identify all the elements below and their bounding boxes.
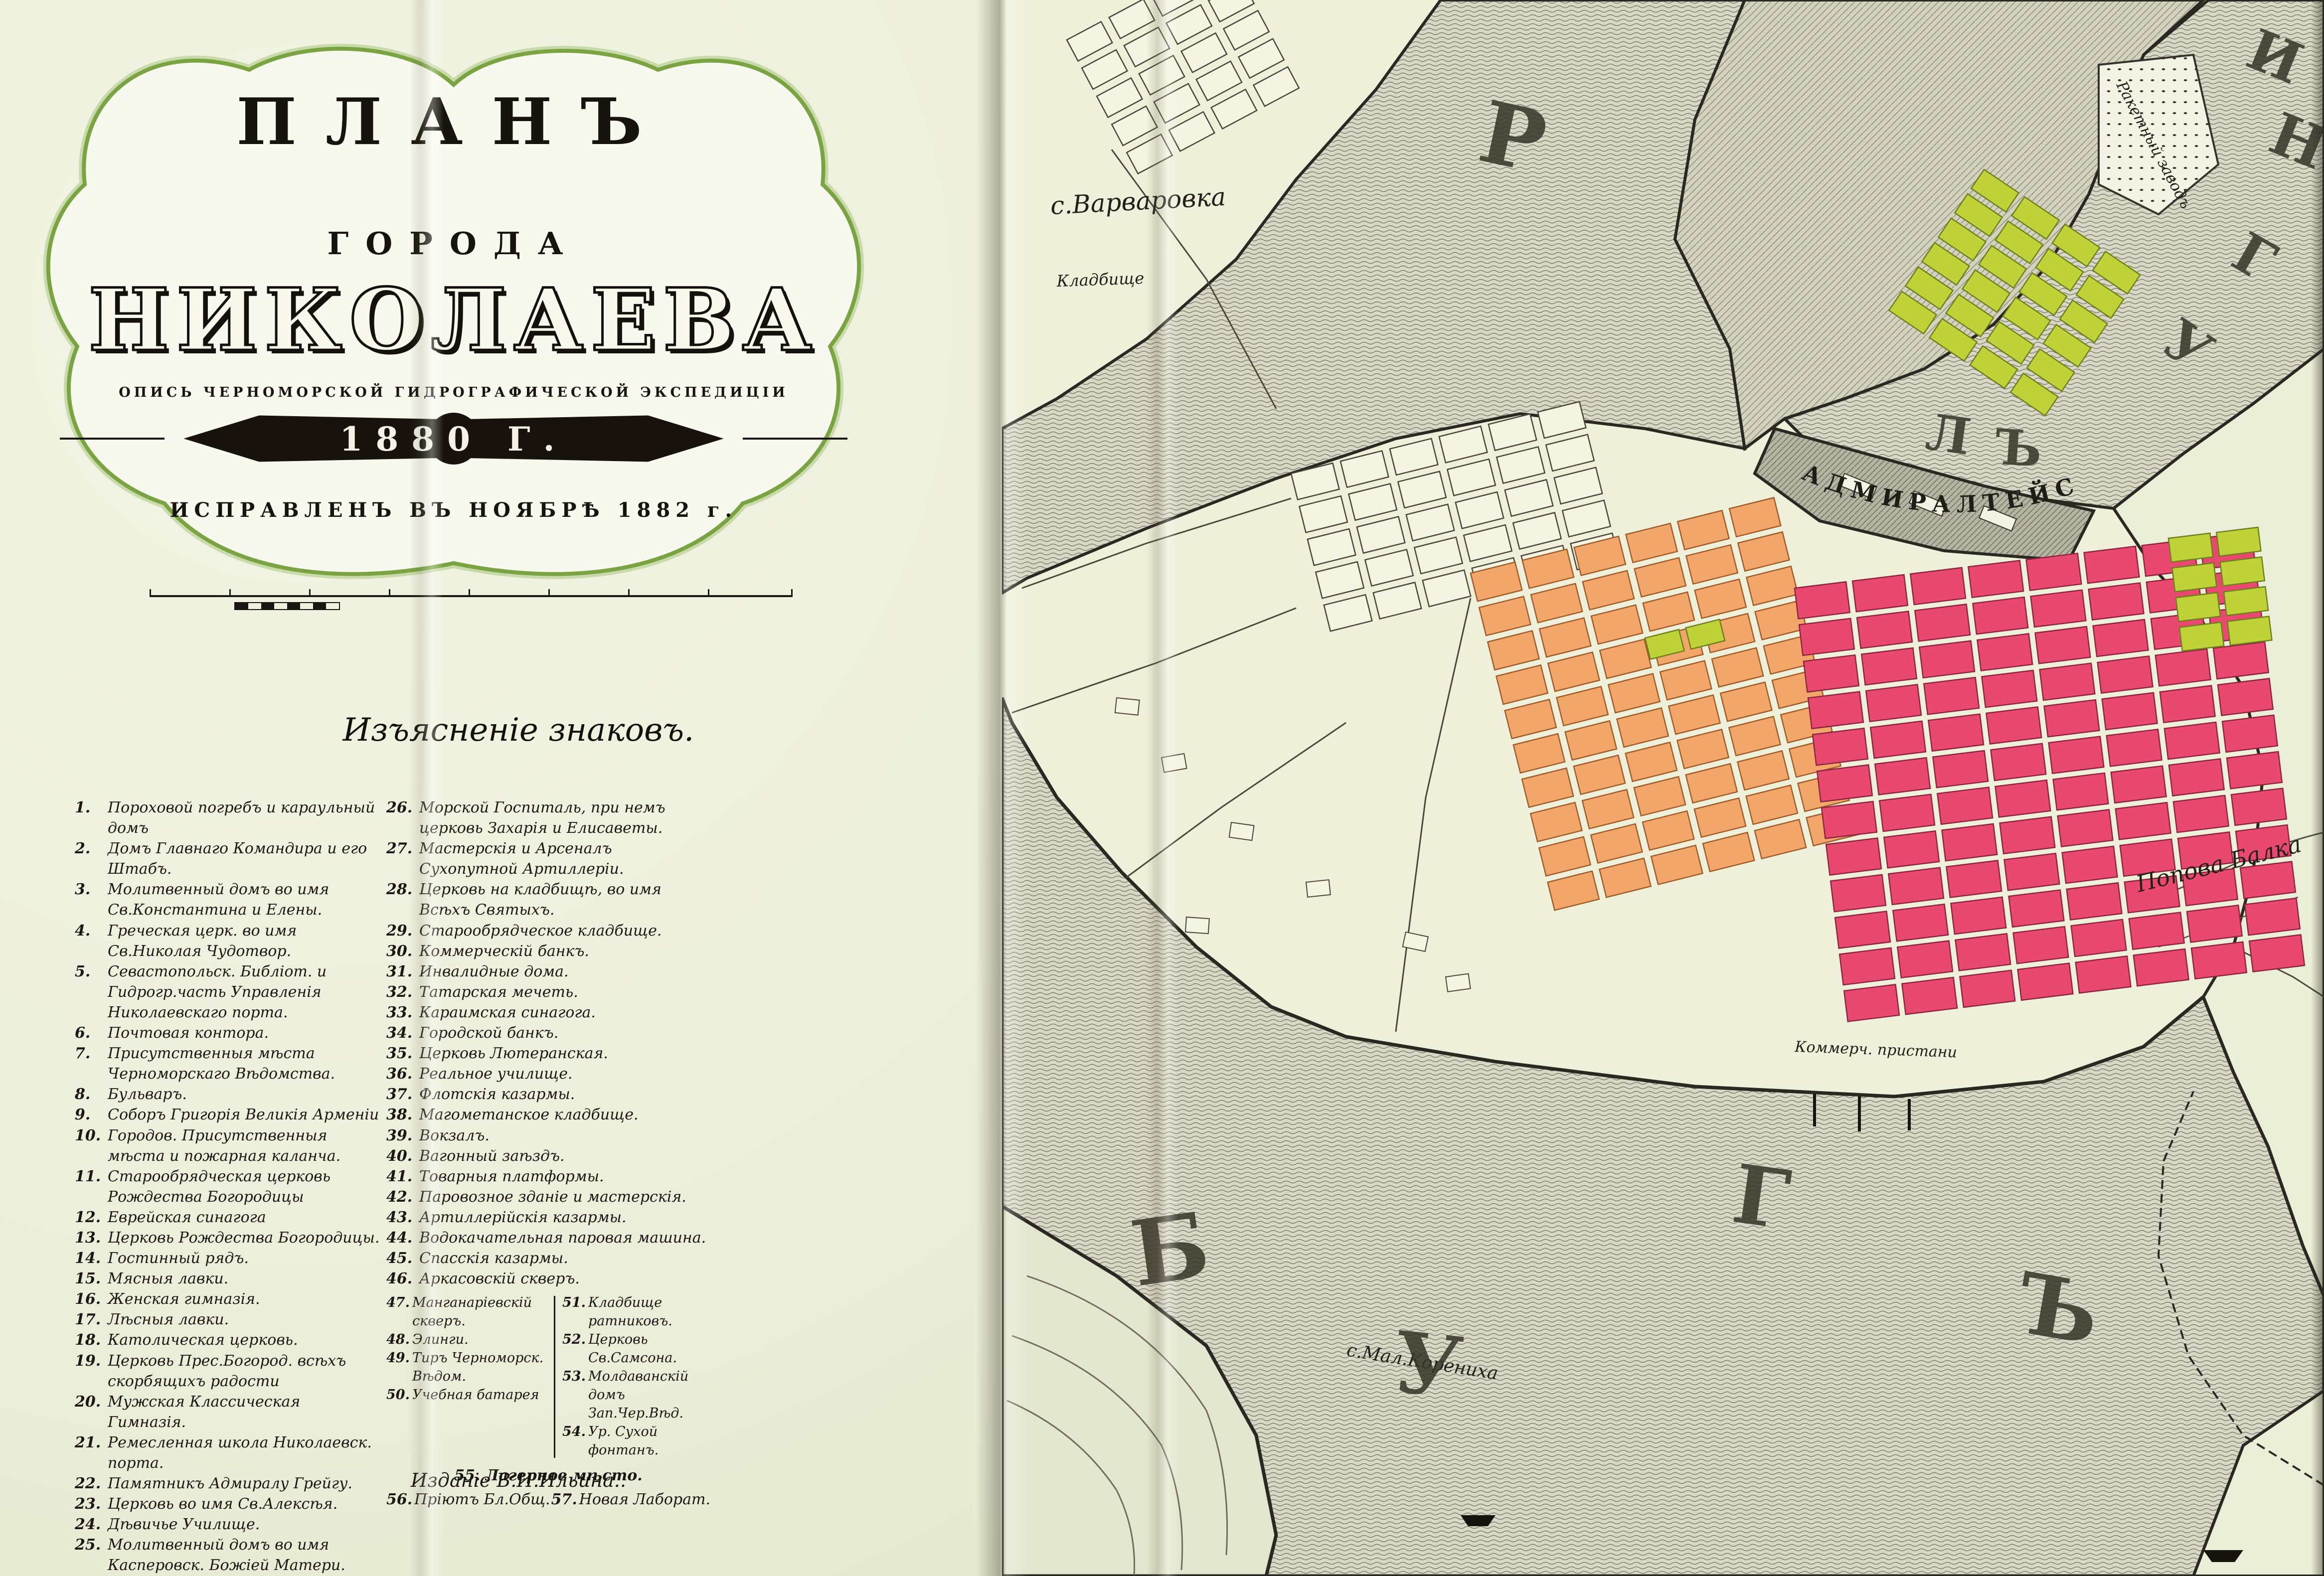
- city-block: [2160, 686, 2215, 723]
- scale-tick: [708, 589, 709, 597]
- legend-item: 41.Товарныя платформы.: [386, 1166, 710, 1187]
- city-block: [2049, 737, 2104, 774]
- city-block: [1933, 751, 1988, 788]
- legend-item-number: 45.: [386, 1248, 412, 1268]
- legend-item-text: Вагонный заѣздъ.: [419, 1147, 565, 1165]
- legend-item-text: Учебная батарея: [412, 1387, 539, 1403]
- legend-item-text: Ур. Сухой фонтанъ.: [588, 1424, 659, 1458]
- legend-item-text: Молитвенный домъ во имя Касперовск. Божі…: [108, 1536, 345, 1574]
- city-block: [1857, 612, 1912, 648]
- legend-item: 1.Пороховой погребъ и караульный домъ: [75, 797, 381, 838]
- city-block: [2067, 883, 2122, 920]
- legend-item-text: Магометанское кладбище.: [419, 1106, 638, 1123]
- city-block: [2035, 627, 2091, 663]
- legend-item-text: Мастерскія и Арсеналъ Сухопутной Артилле…: [419, 840, 624, 878]
- legend-item: 7.Присутственныя мѣста Черноморскаго Вѣд…: [75, 1043, 381, 1084]
- legend-item-text: Флотскія казармы.: [419, 1086, 575, 1103]
- scale-mini-bar: [234, 602, 340, 610]
- legend-item: 33.Караимская синагога.: [386, 1002, 710, 1023]
- city-block: [1795, 582, 1850, 619]
- city-block: [2191, 942, 2247, 979]
- legend-item-number: 43.: [386, 1207, 412, 1228]
- legend-item: 6.Почтовая контора.: [75, 1023, 381, 1043]
- year-ribbon: 1880 Г.: [165, 413, 743, 465]
- city-block: [1942, 824, 1997, 861]
- city-block: [2089, 583, 2144, 620]
- city-block: [1977, 633, 2032, 670]
- legend-item-text: Молдаванскій домъ Зап.Чер.Вѣд.: [588, 1369, 688, 1421]
- city-block: [1839, 948, 1895, 985]
- legend-item-number: 16.: [75, 1289, 101, 1309]
- scale-tick: [150, 589, 151, 597]
- legend-item-text: Лѣсныя лавки.: [108, 1311, 229, 1328]
- legend-item-number: 50.: [386, 1386, 410, 1405]
- city-block: [2227, 752, 2282, 788]
- legend-item: 35.Церковь Лютеранская.: [386, 1043, 710, 1064]
- legend-row-56-57: 56.Пріютъ Бл.Общ.57.Новая Лаборат.: [386, 1489, 710, 1510]
- legend-item-text: Старообрядческая церковь Рождества Богор…: [108, 1168, 331, 1206]
- city-block: [2176, 593, 2220, 622]
- legend-item: 12.Еврейская синагога: [75, 1207, 381, 1228]
- legend-item-number: 26.: [386, 797, 412, 818]
- legend-item-text: Товарныя платформы.: [419, 1168, 604, 1185]
- city-block: [1844, 984, 1899, 1021]
- city-block: [1870, 721, 1926, 758]
- legend-item-text: Церковь Прес.Богород. всѣхъ скорбящихъ р…: [108, 1352, 346, 1390]
- legend-item-text: Мужская Классическая Гимназія.: [108, 1393, 300, 1431]
- scale-bar: [150, 582, 793, 612]
- legend-item: 26.Морской Госпиталь, при немъ церковь З…: [386, 797, 710, 838]
- city-block: [1808, 692, 1863, 729]
- scale-bar-line: [150, 595, 793, 597]
- legend-item-text: Спасскія казармы.: [419, 1250, 568, 1267]
- legend-item-number: 6.: [75, 1023, 90, 1043]
- legend-item-text: Ремесленная школа Николаевск. порта.: [108, 1434, 372, 1472]
- city-block: [2107, 729, 2162, 766]
- legend-sub-columns: 47.Манганаріевскій скверъ.48.Элинги.49.Т…: [386, 1294, 710, 1460]
- legend-item-number: 1.: [75, 797, 90, 818]
- ribbon-rule-left: [60, 438, 165, 440]
- river-letter: У: [1389, 1312, 1467, 1418]
- city-block: [2179, 622, 2224, 651]
- legend-item-text: Присутственныя мѣста Черноморскаго Вѣдом…: [108, 1045, 335, 1083]
- legend-item: 20.Мужская Классическая Гимназія.: [75, 1392, 381, 1432]
- scale-tick: [309, 589, 311, 597]
- river-letter: Ъ: [2010, 1253, 2107, 1364]
- legend-item: 57.Новая Лаборат.: [551, 1489, 710, 1510]
- legend-item-number: 39.: [386, 1125, 412, 1146]
- river-letter: Б: [1125, 1192, 1216, 1307]
- city-block: [2220, 557, 2265, 586]
- legend-item-text: Кладбище ратниковъ.: [588, 1295, 672, 1329]
- legend-item-text: Пороховой погребъ и караульный домъ: [108, 799, 375, 837]
- legend-item-number: 47.: [386, 1294, 410, 1312]
- city-block: [2071, 920, 2127, 956]
- legend-item-number: 56.: [386, 1489, 412, 1510]
- river-letter: Ъ: [1993, 418, 2044, 478]
- city-block: [2222, 715, 2278, 752]
- legend-item-number: 30.: [386, 941, 412, 961]
- legend-item: 30.Коммерческій банкъ.: [386, 941, 710, 961]
- legend-item-number: 53.: [562, 1368, 586, 1386]
- title-page: ПЛАНЪ ГОРОДА НИКОЛАЕВА ОПИСЬ ЧЕРНОМОРСКО…: [0, 0, 1002, 1576]
- legend-item: 5.Севастопольск. Библіот. и Гидрогр.част…: [75, 961, 381, 1023]
- city-block: [1902, 977, 1957, 1014]
- publisher-imprint: Изданіе В.И.Ильина..: [319, 1469, 718, 1491]
- legend-item: 2.Домъ Главнаго Командира и его Штабъ.: [75, 838, 381, 879]
- legend-item: 37.Флотскія казармы.: [386, 1084, 710, 1104]
- legend-item-number: 48.: [386, 1331, 410, 1349]
- city-block: [1897, 941, 1953, 978]
- city-block: [1991, 744, 2046, 781]
- legend-item: 46.Аркасовскій скверъ.: [386, 1268, 710, 1289]
- legend-item: 18.Католическая церковь.: [75, 1330, 381, 1350]
- legend-item-text: Водокачательная паровая машина.: [419, 1229, 706, 1247]
- city-block: [2040, 663, 2095, 700]
- legend-item: 9.Соборъ Григорія Великія Арменіи: [75, 1104, 381, 1125]
- city-block: [2009, 890, 2064, 927]
- legend-item-number: 8.: [75, 1084, 90, 1104]
- legend-item: 52.Церковь Св.Самсона.: [562, 1331, 707, 1368]
- legend-item-text: Церковь Рождества Богородицы.: [108, 1229, 380, 1247]
- legend-item-number: 42.: [386, 1187, 412, 1207]
- legend-item-text: Тиръ Черноморск. Вѣдом.: [412, 1350, 543, 1384]
- city-block: [1973, 597, 2028, 634]
- legend-item-number: 5.: [75, 961, 90, 982]
- city-block: [2084, 546, 2140, 583]
- city-block: [1866, 684, 1921, 721]
- city-block: [2249, 935, 2305, 971]
- legend-item-text: Церковь на кладбищѣ, во имя Всѣхъ Святых…: [419, 881, 662, 919]
- legend-item: 11.Старообрядческая церковь Рождества Бо…: [75, 1166, 381, 1207]
- city-block: [1875, 758, 1930, 794]
- legend-item-text: Инвалидные дома.: [419, 963, 569, 980]
- city-block: [1910, 568, 1966, 605]
- legend-item-number: 12.: [75, 1207, 101, 1228]
- legend-item-text: Городов. Присутственныя мѣста и пожарная…: [108, 1127, 340, 1165]
- legend-item-number: 22.: [75, 1473, 101, 1494]
- legend-item-text: Церковь Св.Самсона.: [588, 1332, 677, 1366]
- legend-item: 13.Церковь Рождества Богородицы.: [75, 1228, 381, 1248]
- legend-item-text: Почтовая контора.: [108, 1024, 269, 1042]
- legend-item-number: 28.: [386, 879, 412, 900]
- legend-item-number: 49.: [386, 1349, 410, 1368]
- city-block: [2187, 905, 2242, 942]
- city-block: [2031, 590, 2086, 627]
- city-block: [1955, 934, 2010, 970]
- city-block: [2216, 527, 2261, 556]
- legend-item-text: Домъ Главнаго Командира и его Штабъ.: [108, 840, 367, 878]
- legend-item: 44.Водокачательная паровая машина.: [386, 1228, 710, 1248]
- legend-item-text: Старообрядческое кладбище.: [419, 922, 662, 940]
- legend-item-number: 3.: [75, 879, 90, 900]
- legend-item-number: 11.: [75, 1166, 101, 1187]
- legend-item-number: 31.: [386, 961, 412, 982]
- legend-item-text: Татарская мечеть.: [419, 983, 578, 1001]
- city-block: [2093, 620, 2149, 656]
- city-block: [2098, 656, 2153, 693]
- legend-item-number: 36.: [386, 1064, 412, 1084]
- city-block: [2018, 963, 2073, 1000]
- city-block: [2134, 949, 2189, 986]
- legend-item-number: 14.: [75, 1248, 101, 1268]
- city-block: [1982, 670, 2037, 707]
- legend-column-2: 26.Морской Госпиталь, при немъ церковь З…: [386, 797, 710, 1510]
- city-block: [1826, 838, 1881, 875]
- scale-tick: [791, 589, 793, 597]
- legend-item-text: Манганаріевскій скверъ.: [412, 1295, 532, 1329]
- legend-item: 19.Церковь Прес.Богород. всѣхъ скорбящих…: [75, 1351, 381, 1392]
- legend-item-number: 57.: [551, 1489, 577, 1510]
- city-block: [2227, 617, 2272, 645]
- legend-item: 39.Вокзалъ.: [386, 1125, 710, 1146]
- city-block: [1960, 970, 2015, 1007]
- legend-item-text: Пріютъ Бл.Общ.: [414, 1491, 550, 1508]
- city-block: [2213, 642, 2269, 679]
- legend-item-text: Коммерческій банкъ.: [419, 943, 589, 960]
- legend-item-text: Паровозное зданіе и мастерскія.: [419, 1188, 686, 1206]
- ribbon-rule-right: [743, 438, 847, 440]
- legend-item-text: Мясныя лавки.: [108, 1270, 228, 1287]
- city-block: [1928, 714, 1984, 751]
- legend-item-text: Молитвенный домъ во имя Св.Константина и…: [108, 881, 329, 919]
- city-block: [2156, 649, 2211, 686]
- legend-item: 34.Городской банкъ.: [386, 1023, 710, 1043]
- city-block: [2044, 700, 2100, 737]
- legend-item: 31.Инвалидные дома.: [386, 961, 710, 982]
- city-block: [2173, 795, 2229, 832]
- legend-item-number: 46.: [386, 1268, 412, 1289]
- legend-item-text: Артиллерійскія казармы.: [419, 1209, 627, 1226]
- city-block: [1879, 794, 1935, 831]
- legend-item-number: 37.: [386, 1084, 412, 1104]
- city-block: [1804, 655, 1859, 692]
- legend-item: 4.Греческая церк. во имя Св.Николая Чудо…: [75, 921, 381, 961]
- city-block: [1893, 904, 1948, 941]
- legend-item-number: 20.: [75, 1392, 101, 1412]
- scale-tick: [548, 589, 550, 597]
- legend-item-text: Гостинный рядъ.: [108, 1250, 249, 1267]
- city-block: [2000, 817, 2055, 854]
- city-block: [2116, 802, 2171, 839]
- legend-item-text: Церковь Лютеранская.: [419, 1045, 608, 1062]
- city-block: [2172, 563, 2216, 592]
- legend-item-text: Соборъ Григорія Великія Арменіи: [108, 1106, 379, 1123]
- city-block: [2076, 956, 2131, 993]
- legend-item: 42.Паровозное зданіе и мастерскія.: [386, 1187, 710, 1207]
- city-block: [2245, 898, 2300, 935]
- legend-sub-left: 47.Манганаріевскій скверъ.48.Элинги.49.Т…: [386, 1294, 551, 1460]
- legend-item-text: Реальное училище.: [419, 1065, 573, 1083]
- hamlet-block: [1446, 974, 1471, 992]
- map-title-goroda: ГОРОДА: [15, 225, 892, 262]
- legend-item-text: Бульваръ.: [108, 1086, 187, 1103]
- map-subtitle: ОПИСЬ ЧЕРНОМОРСКОЙ ГИДРОГРАФИЧЕСКОЙ ЭКСП…: [15, 385, 892, 400]
- legend-item-number: 51.: [562, 1294, 586, 1312]
- legend-item: 36.Реальное училище.: [386, 1064, 710, 1084]
- hamlet-block: [1185, 917, 1209, 934]
- legend-item-text: Еврейская синагога: [108, 1209, 266, 1226]
- hamlet-block: [1229, 822, 1254, 840]
- river-letter: Л: [1923, 402, 1975, 467]
- legend-divider: [554, 1296, 555, 1458]
- legend-item: 25.Молитвенный домъ во имя Касперовск. Б…: [75, 1535, 381, 1576]
- city-block: [1968, 561, 2023, 598]
- city-block: [2231, 788, 2287, 825]
- legend-item: 21.Ремесленная школа Николаевск. порта.: [75, 1432, 381, 1473]
- legend-item-number: 38.: [386, 1104, 412, 1125]
- legend-item-text: Католическая церковь.: [108, 1331, 298, 1349]
- legend-column-1: 1.Пороховой погребъ и караульный домъ2.Д…: [75, 797, 381, 1576]
- legend-item-number: 29.: [386, 921, 412, 941]
- legend-item-number: 21.: [75, 1432, 101, 1453]
- city-map: АДМИРАЛТЕЙСТВО с.ВарваровкаКладбищеРакет…: [1002, 0, 2324, 1576]
- city-block: [1986, 707, 2041, 744]
- legend-header: Изъясненіе знаковъ.: [214, 712, 823, 749]
- legend-item-number: 27.: [386, 838, 412, 859]
- city-block: [2026, 553, 2082, 590]
- legend-item-text: Вокзалъ.: [419, 1127, 490, 1144]
- legend-item-text: Женская гимназія.: [108, 1290, 260, 1308]
- legend-item-number: 9.: [75, 1104, 90, 1125]
- city-block: [2058, 809, 2113, 846]
- legend-item: 28.Церковь на кладбищѣ, во имя Всѣхъ Свя…: [386, 879, 710, 920]
- city-block: [1995, 780, 2050, 817]
- map-label: Кладбище: [1056, 269, 1145, 291]
- legend-item: 48.Элинги.: [386, 1331, 551, 1349]
- city-block: [1835, 911, 1890, 948]
- hamlet-block: [1115, 698, 1140, 715]
- city-block: [2053, 773, 2109, 810]
- legend-item-number: 41.: [386, 1166, 412, 1187]
- city-block: [2169, 759, 2224, 795]
- legend-item-number: 52.: [562, 1331, 586, 1349]
- legend-item-number: 18.: [75, 1330, 101, 1350]
- legend-item-number: 19.: [75, 1351, 101, 1371]
- legend-item-number: 32.: [386, 982, 412, 1002]
- legend-sub-right: 51.Кладбище ратниковъ.52.Церковь Св.Самс…: [562, 1294, 707, 1460]
- legend-item-number: 33.: [386, 1002, 412, 1023]
- city-block: [2004, 853, 2060, 890]
- legend-item-number: 23.: [75, 1494, 101, 1514]
- legend-item: 24.Дѣвичье Училище.: [75, 1514, 381, 1535]
- map-title-plan: ПЛАНЪ: [15, 85, 892, 159]
- city-block: [1817, 765, 1872, 802]
- legend-item-number: 2.: [75, 838, 90, 859]
- legend-item-text: Караимская синагога.: [419, 1004, 596, 1021]
- legend-item-number: 34.: [386, 1023, 412, 1043]
- legend-item-number: 4.: [75, 921, 90, 941]
- city-block: [2111, 766, 2166, 803]
- city-block: [2168, 533, 2213, 562]
- legend-item-text: Новая Лаборат.: [579, 1491, 710, 1508]
- legend-item-number: 40.: [386, 1146, 412, 1166]
- legend-item-text: Памятникъ Адмиралу Грейгу.: [108, 1475, 352, 1492]
- legend-item: 23.Церковь во имя Св.Алексѣя.: [75, 1494, 381, 1514]
- legend-item-number: 44.: [386, 1228, 412, 1248]
- scale-tick: [229, 589, 231, 597]
- city-block: [2013, 927, 2069, 963]
- city-block: [1813, 728, 1868, 765]
- legend-item: 17.Лѣсныя лавки.: [75, 1309, 381, 1330]
- city-block: [2224, 587, 2268, 616]
- legend-item: 29.Старообрядческое кладбище.: [386, 921, 710, 941]
- scale-tick: [628, 589, 630, 597]
- city-block: [1799, 619, 1854, 655]
- city-block: [1946, 860, 2001, 897]
- city-block: [1888, 868, 1944, 905]
- legend-item-text: Городской банкъ.: [419, 1024, 558, 1042]
- legend-item: 47.Манганаріевскій скверъ.: [386, 1294, 551, 1331]
- city-block: [1937, 787, 1992, 824]
- legend-item: 49.Тиръ Черноморск. Вѣдом.: [386, 1349, 551, 1386]
- legend-item: 38.Магометанское кладбище.: [386, 1104, 710, 1125]
- legend-item-text: Элинги.: [412, 1332, 469, 1347]
- city-block: [2218, 678, 2273, 715]
- scale-tick: [389, 589, 390, 597]
- legend-item-number: 13.: [75, 1228, 101, 1248]
- city-block: [2164, 722, 2220, 759]
- city-block: [1915, 604, 1970, 641]
- scanned-map-spread: { "page_title": "Планъ города Николаева …: [0, 0, 2324, 1576]
- legend-item: 40.Вагонный заѣздъ.: [386, 1146, 710, 1166]
- legend-item: 3.Молитвенный домъ во имя Св.Константина…: [75, 879, 381, 920]
- city-block: [1951, 897, 2006, 934]
- legend-item: 8.Бульваръ.: [75, 1084, 381, 1104]
- legend-item-text: Аркасовскій скверъ.: [419, 1270, 580, 1287]
- legend-item-number: 54.: [562, 1423, 586, 1441]
- legend-item: 14.Гостинный рядъ.: [75, 1248, 381, 1268]
- legend-item-text: Морской Госпиталь, при немъ церковь Заха…: [419, 799, 665, 837]
- city-block: [1822, 801, 1877, 838]
- legend-item: 16.Женская гимназія.: [75, 1289, 381, 1309]
- legend-item: 10.Городов. Присутственныя мѣста и пожар…: [75, 1125, 381, 1166]
- city-block: [1830, 875, 1886, 912]
- legend-item-number: 24.: [75, 1514, 101, 1535]
- legend-item-number: 15.: [75, 1268, 101, 1289]
- legend-item: 43.Артиллерійскія казармы.: [386, 1207, 710, 1228]
- city-block: [1861, 648, 1917, 685]
- legend-item: 53.Молдаванскій домъ Зап.Чер.Вѣд.: [562, 1368, 707, 1423]
- legend-item: 56.Пріютъ Бл.Общ.: [386, 1489, 550, 1510]
- corrected-note: ИСПРАВЛЕНЪ ВЪ НОЯБРѢ 1882 г.: [15, 498, 892, 522]
- legend-item-number: 7.: [75, 1043, 90, 1064]
- city-block: [1852, 575, 1908, 612]
- city-block: [1919, 641, 1975, 678]
- map-year: 1880 Г.: [165, 420, 743, 459]
- legend-item-text: Дѣвичье Училище.: [108, 1516, 260, 1533]
- legend-item: 54.Ур. Сухой фонтанъ.: [562, 1423, 707, 1460]
- legend-item-number: 17.: [75, 1309, 101, 1330]
- legend-item-text: Севастопольск. Библіот. и Гидрогр.часть …: [108, 963, 327, 1021]
- legend-item: 51.Кладбище ратниковъ.: [562, 1294, 707, 1331]
- legend-item-text: Церковь во имя Св.Алексѣя.: [108, 1495, 337, 1513]
- map-page: АДМИРАЛТЕЙСТВО с.ВарваровкаКладбищеРакет…: [1002, 0, 2324, 1576]
- legend-item: 15.Мясныя лавки.: [75, 1268, 381, 1289]
- legend-item: 45.Спасскія казармы.: [386, 1248, 710, 1268]
- legend-item-text: Греческая церк. во имя Св.Николая Чудотв…: [108, 922, 297, 960]
- map-title-city: НИКОЛАЕВА: [15, 269, 892, 370]
- city-block: [2129, 913, 2184, 949]
- legend-item-number: 35.: [386, 1043, 412, 1064]
- legend-item-number: 10.: [75, 1125, 101, 1146]
- city-block: [2102, 693, 2158, 730]
- legend-item-number: 25.: [75, 1535, 101, 1555]
- scale-tick: [469, 589, 470, 597]
- city-block: [1924, 677, 1979, 714]
- legend-item: 50.Учебная батарея: [386, 1386, 551, 1405]
- city-block: [1884, 831, 1939, 868]
